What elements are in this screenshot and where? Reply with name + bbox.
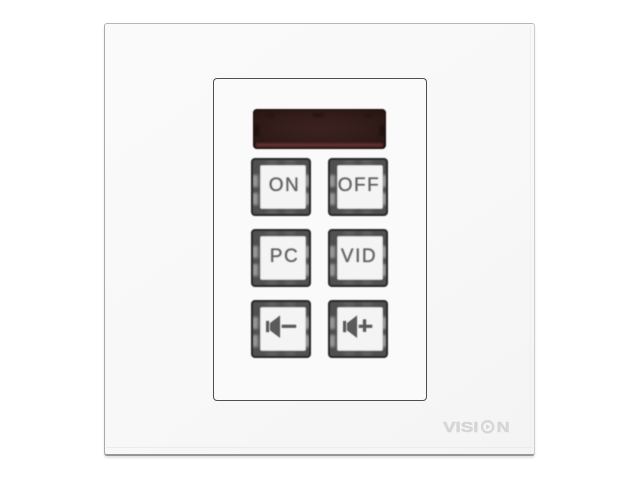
svg-text:N: N (497, 420, 510, 434)
svg-text:VISI: VISI (443, 420, 479, 434)
